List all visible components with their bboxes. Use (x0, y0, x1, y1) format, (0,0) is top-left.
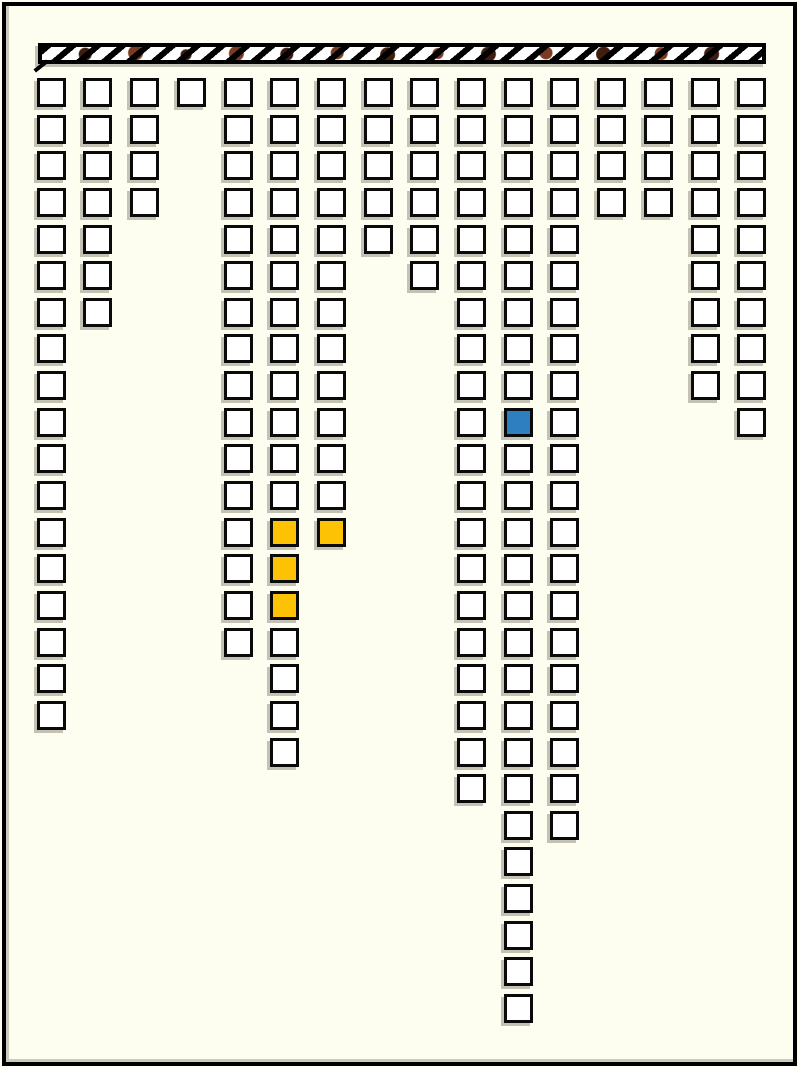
grid-cell[interactable] (224, 628, 253, 657)
grid-cell[interactable] (410, 261, 439, 290)
grid-cell[interactable] (37, 78, 66, 107)
grid-cell[interactable] (37, 554, 66, 583)
grid-cell[interactable] (550, 298, 579, 327)
grid-cell[interactable] (597, 151, 626, 180)
grid-cell[interactable] (37, 225, 66, 254)
grid-cell[interactable] (504, 554, 533, 583)
grid-cell[interactable] (317, 371, 346, 400)
grid-cell[interactable] (317, 408, 346, 437)
grid-cell[interactable] (550, 481, 579, 510)
grid-cell[interactable] (83, 78, 112, 107)
grid-cell[interactable] (737, 188, 766, 217)
grid-cell[interactable] (83, 261, 112, 290)
grid-cell[interactable] (37, 371, 66, 400)
grid-cell[interactable] (597, 115, 626, 144)
grid-cell[interactable] (410, 151, 439, 180)
grid-cell[interactable] (504, 225, 533, 254)
grid-cell[interactable] (37, 701, 66, 730)
grid-cell[interactable] (597, 78, 626, 107)
grid-cell[interactable] (317, 444, 346, 473)
grid-cell[interactable] (644, 151, 673, 180)
grid-cell[interactable] (691, 298, 720, 327)
grid-cell[interactable] (37, 664, 66, 693)
grid-cell[interactable] (457, 225, 486, 254)
grid-cell[interactable] (737, 371, 766, 400)
grid-cell[interactable] (504, 334, 533, 363)
grid-cell[interactable] (317, 481, 346, 510)
grid-cell[interactable] (504, 701, 533, 730)
grid-cell-yellow[interactable] (270, 591, 299, 620)
grid-cell[interactable] (457, 334, 486, 363)
grid-cell[interactable] (37, 444, 66, 473)
grid-cell[interactable] (550, 78, 579, 107)
grid-cell[interactable] (457, 554, 486, 583)
grid-cell[interactable] (224, 481, 253, 510)
grid-cell[interactable] (737, 115, 766, 144)
grid-cell[interactable] (37, 591, 66, 620)
grid-cell[interactable] (550, 444, 579, 473)
grid-cell[interactable] (550, 554, 579, 583)
grid-cell[interactable] (737, 78, 766, 107)
grid-cell[interactable] (457, 591, 486, 620)
grid-cell[interactable] (691, 261, 720, 290)
grid-cell[interactable] (457, 518, 486, 547)
grid-cell[interactable] (410, 78, 439, 107)
grid-cell[interactable] (550, 811, 579, 840)
grid-cell[interactable] (317, 188, 346, 217)
grid-cell[interactable] (550, 591, 579, 620)
grid-cell[interactable] (317, 115, 346, 144)
grid-cell[interactable] (224, 298, 253, 327)
grid-cell[interactable] (737, 298, 766, 327)
grid-cell[interactable] (550, 701, 579, 730)
grid-cell[interactable] (457, 774, 486, 803)
grid-cell[interactable] (644, 188, 673, 217)
grid-cell[interactable] (224, 518, 253, 547)
grid-cell[interactable] (270, 628, 299, 657)
grid-cell[interactable] (224, 261, 253, 290)
grid-cell[interactable] (410, 188, 439, 217)
grid-cell[interactable] (550, 664, 579, 693)
grid-cell[interactable] (224, 334, 253, 363)
grid-cell[interactable] (317, 298, 346, 327)
grid-cell[interactable] (37, 115, 66, 144)
grid-cell[interactable] (224, 371, 253, 400)
grid-cell[interactable] (224, 444, 253, 473)
grid-cell[interactable] (550, 115, 579, 144)
grid-cell[interactable] (550, 225, 579, 254)
grid-cell[interactable] (737, 261, 766, 290)
grid-cell[interactable] (270, 371, 299, 400)
game-canvas (0, 0, 800, 1067)
grid-cell[interactable] (550, 408, 579, 437)
grid-cell[interactable] (410, 115, 439, 144)
grid-cell[interactable] (644, 115, 673, 144)
grid-cell[interactable] (37, 481, 66, 510)
grid-cell[interactable] (317, 225, 346, 254)
grid-cell[interactable] (83, 298, 112, 327)
grid-cell[interactable] (737, 408, 766, 437)
grid-cell[interactable] (224, 151, 253, 180)
grid-cell[interactable] (224, 188, 253, 217)
grid-cell[interactable] (364, 225, 393, 254)
grid-cell[interactable] (224, 78, 253, 107)
grid-cell[interactable] (270, 298, 299, 327)
grid-cell[interactable] (457, 701, 486, 730)
grid-cell[interactable] (550, 628, 579, 657)
grid-cell[interactable] (504, 188, 533, 217)
grid-cell[interactable] (83, 188, 112, 217)
grid-cell[interactable] (691, 334, 720, 363)
grid-cell[interactable] (130, 115, 159, 144)
grid-cell[interactable] (504, 115, 533, 144)
grid-cell[interactable] (270, 444, 299, 473)
grid-cell[interactable] (504, 738, 533, 767)
grid-cell[interactable] (457, 481, 486, 510)
grid-cell[interactable] (691, 115, 720, 144)
grid-cell[interactable] (550, 738, 579, 767)
grid-cell[interactable] (504, 994, 533, 1023)
grid-cell[interactable] (457, 444, 486, 473)
grid-cell[interactable] (504, 664, 533, 693)
grid-cell[interactable] (224, 408, 253, 437)
grid-cell[interactable] (691, 225, 720, 254)
grid-cell[interactable] (550, 371, 579, 400)
grid-cell[interactable] (270, 408, 299, 437)
grid-cell[interactable] (691, 371, 720, 400)
grid-cell[interactable] (504, 921, 533, 950)
grid-cell[interactable] (224, 591, 253, 620)
grid-cell[interactable] (691, 78, 720, 107)
grid-cell[interactable] (270, 481, 299, 510)
grid-cell[interactable] (37, 298, 66, 327)
grid-cell[interactable] (737, 334, 766, 363)
grid-cell[interactable] (270, 701, 299, 730)
grid-cell[interactable] (317, 261, 346, 290)
grid-cell[interactable] (270, 738, 299, 767)
grid-cell[interactable] (504, 444, 533, 473)
grid-cell[interactable] (737, 151, 766, 180)
grid-cell[interactable] (317, 151, 346, 180)
grid-cell[interactable] (457, 115, 486, 144)
grid-cell[interactable] (410, 225, 439, 254)
grid-cell[interactable] (597, 188, 626, 217)
grid-cell[interactable] (504, 371, 533, 400)
grid-cell[interactable] (457, 371, 486, 400)
grid-cell-yellow[interactable] (270, 518, 299, 547)
grid-cell[interactable] (457, 628, 486, 657)
grid-cell[interactable] (130, 78, 159, 107)
grid-cell[interactable] (644, 78, 673, 107)
grid-cell[interactable] (130, 151, 159, 180)
grid-cell[interactable] (504, 78, 533, 107)
grid-cell[interactable] (457, 298, 486, 327)
grid-cell[interactable] (457, 738, 486, 767)
grid-cell[interactable] (550, 774, 579, 803)
grid-cell-yellow[interactable] (270, 554, 299, 583)
grid-cell[interactable] (270, 115, 299, 144)
grid-cell[interactable] (270, 225, 299, 254)
grid-cell[interactable] (37, 334, 66, 363)
grid-cell[interactable] (504, 774, 533, 803)
grid-cell[interactable] (37, 188, 66, 217)
grid-cell[interactable] (364, 188, 393, 217)
grid-cell[interactable] (317, 334, 346, 363)
grid-cell[interactable] (270, 334, 299, 363)
grid-cell[interactable] (83, 151, 112, 180)
grid-cell[interactable] (364, 151, 393, 180)
grid-cell[interactable] (83, 115, 112, 144)
grid-cell[interactable] (364, 115, 393, 144)
grid-cell[interactable] (270, 151, 299, 180)
grid-cell[interactable] (550, 151, 579, 180)
grid-cell[interactable] (457, 151, 486, 180)
grid-cell[interactable] (550, 518, 579, 547)
grid-cell[interactable] (37, 408, 66, 437)
grid-cell[interactable] (504, 957, 533, 986)
grid-cell[interactable] (504, 518, 533, 547)
grid-cell[interactable] (550, 188, 579, 217)
grid-cell[interactable] (270, 261, 299, 290)
grid-cell[interactable] (224, 225, 253, 254)
grid-cell[interactable] (37, 151, 66, 180)
grid-cell[interactable] (270, 188, 299, 217)
grid-cell-blue[interactable] (504, 408, 533, 437)
grid-cell[interactable] (550, 334, 579, 363)
grid-cell[interactable] (504, 481, 533, 510)
grid-cell[interactable] (37, 518, 66, 547)
grid-cell[interactable] (270, 78, 299, 107)
grid-cell-yellow[interactable] (317, 518, 346, 547)
grid-cell[interactable] (504, 261, 533, 290)
grid-cell[interactable] (691, 188, 720, 217)
grid-cell[interactable] (504, 151, 533, 180)
grid-cell[interactable] (691, 151, 720, 180)
grid-cell[interactable] (364, 78, 393, 107)
grid-cell[interactable] (130, 188, 159, 217)
grid-cell[interactable] (224, 554, 253, 583)
grid-cell[interactable] (317, 78, 346, 107)
grid-cell[interactable] (224, 115, 253, 144)
grid-cell[interactable] (504, 591, 533, 620)
grid-cell[interactable] (37, 628, 66, 657)
grid-cell[interactable] (37, 261, 66, 290)
grid-cell[interactable] (177, 78, 206, 107)
grid-cell[interactable] (83, 225, 112, 254)
grid-cell[interactable] (457, 78, 486, 107)
ceiling-hatched-bar (38, 43, 766, 64)
grid-cell[interactable] (504, 628, 533, 657)
grid-cell[interactable] (457, 188, 486, 217)
grid-cell[interactable] (270, 664, 299, 693)
grid-cell[interactable] (737, 225, 766, 254)
grid-cell[interactable] (504, 298, 533, 327)
board-frame (2, 2, 797, 1066)
grid-cell[interactable] (457, 408, 486, 437)
grid-cell[interactable] (504, 811, 533, 840)
grid-cell[interactable] (504, 884, 533, 913)
grid-cell[interactable] (457, 664, 486, 693)
grid-cell[interactable] (550, 261, 579, 290)
grid-cell[interactable] (457, 261, 486, 290)
grid-cell[interactable] (504, 847, 533, 876)
